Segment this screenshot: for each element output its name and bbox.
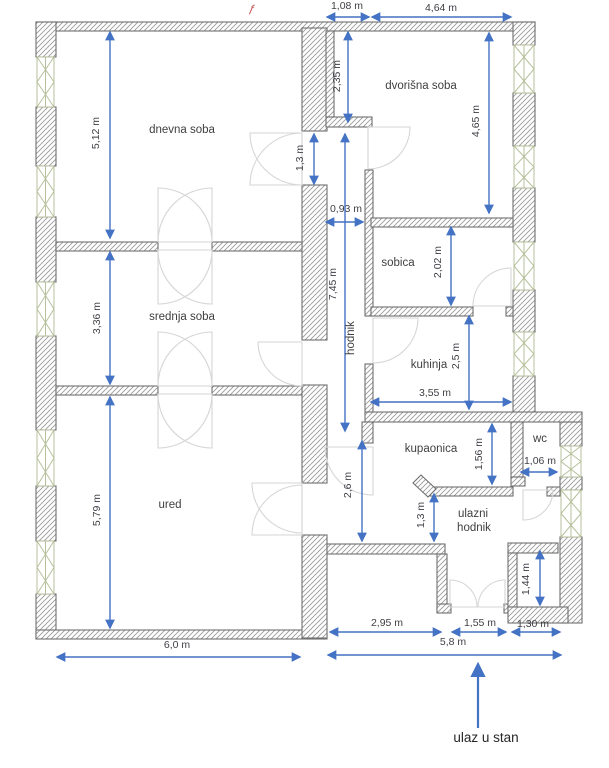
doors-layer xyxy=(158,127,553,607)
door-arc-icon xyxy=(158,250,212,304)
walls-layer xyxy=(36,22,582,639)
dimension-label: 5,8 m xyxy=(440,636,467,648)
dimension-label: 2,02 m xyxy=(432,246,444,278)
dimension-label: 1,3 m xyxy=(294,145,306,172)
dimension-label: 5,12 m xyxy=(90,117,102,149)
window-icon xyxy=(561,490,581,537)
wall-segment xyxy=(212,386,302,395)
window-icon xyxy=(37,166,54,217)
wall-segment xyxy=(36,22,56,57)
wall-segment xyxy=(56,386,158,395)
dimension-label: 7,45 m xyxy=(327,268,339,300)
wall-segment xyxy=(36,107,56,166)
wall-segment xyxy=(560,477,582,490)
dimension-label: 1,55 m xyxy=(464,617,496,629)
door-arc-icon xyxy=(158,188,212,242)
dimension-label: 1,56 m xyxy=(473,438,485,470)
dimension-label: 1,30 m xyxy=(517,618,549,630)
door-arc-icon xyxy=(158,394,212,448)
floorplan-drawing: 1,08 m4,64 m5,12 m3,36 m5,79 m2,35 m4,65… xyxy=(0,0,609,768)
wall-segment xyxy=(302,28,327,131)
wall-segment xyxy=(513,93,535,146)
door-arc-icon xyxy=(368,127,410,169)
window-icon xyxy=(37,57,54,107)
room-label: wc xyxy=(532,433,547,445)
dimension-label: 2,35 m xyxy=(331,60,343,92)
room-label: hodnik xyxy=(345,321,357,355)
wall-segment xyxy=(36,486,56,541)
wall-segment xyxy=(437,604,451,613)
window-icon xyxy=(514,45,534,93)
dimension-label: 0,93 m xyxy=(330,203,362,215)
door-arc-icon xyxy=(158,332,212,386)
wall-segment xyxy=(36,336,56,430)
wall-segment xyxy=(513,188,535,242)
wall-segment xyxy=(326,117,372,127)
room-label: ured xyxy=(158,499,181,511)
wall-segment xyxy=(365,364,373,412)
wall-segment xyxy=(362,422,373,443)
wall-segment xyxy=(511,422,523,477)
room-label: kuhinja xyxy=(411,359,448,371)
wall-segment xyxy=(212,242,302,251)
wall-segment xyxy=(560,422,582,446)
wall-segment xyxy=(302,535,327,638)
wall-segment xyxy=(437,554,447,612)
entrance-label: ulaz u stan xyxy=(453,730,518,745)
door-arc-icon xyxy=(258,342,302,386)
wall-segment xyxy=(365,412,582,422)
room-label: srednja soba xyxy=(149,311,215,323)
wall-segment xyxy=(302,185,327,340)
door-arc-icon xyxy=(373,318,418,363)
dimension-label: 4,65 m xyxy=(470,105,482,137)
wall-segment xyxy=(36,217,56,282)
wall-segment xyxy=(513,290,535,332)
dimension-label: 5,79 m xyxy=(91,494,103,526)
window-icon xyxy=(514,146,534,188)
wall-segment xyxy=(506,307,513,316)
wall-segment xyxy=(36,22,535,31)
wall-segment xyxy=(508,553,517,607)
wall-segment xyxy=(365,170,373,316)
window-icon xyxy=(37,541,54,594)
wall-segment xyxy=(513,22,535,45)
dimension-label: 3,36 m xyxy=(91,302,103,334)
dimension-label: 2,5 m xyxy=(450,343,462,370)
dimension-label: 6,0 m xyxy=(164,639,191,651)
room-label: dvorišna soba xyxy=(385,80,457,92)
door-arc-icon xyxy=(473,268,511,306)
dimension-label: 4,64 m xyxy=(425,2,457,14)
dimension-label: 1,08 m xyxy=(331,0,363,12)
room-label: hodnik xyxy=(457,522,491,534)
door-arc-icon xyxy=(158,188,212,242)
dimension-label: 3,55 m xyxy=(419,387,451,399)
door-arc-icon xyxy=(158,394,212,448)
dimension-label: 1,3 m xyxy=(415,502,427,529)
window-icon xyxy=(37,430,54,486)
room-label: sobica xyxy=(381,257,415,269)
wall-segment xyxy=(508,543,558,553)
door-arc-icon xyxy=(158,332,212,386)
wall-segment xyxy=(513,376,535,416)
wall-segment xyxy=(302,385,327,483)
wall-segment xyxy=(56,242,158,251)
dimension-label: 2,95 m xyxy=(371,617,403,629)
floorplan-page: 1,08 m4,64 m5,12 m3,36 m5,79 m2,35 m4,65… xyxy=(0,0,609,768)
door-arc-icon xyxy=(450,580,477,607)
red-pen-mark: ƒ xyxy=(247,3,255,16)
window-icon xyxy=(514,332,534,376)
window-icon xyxy=(37,282,54,336)
dimension-label: 2,6 m xyxy=(342,472,354,499)
wall-segment xyxy=(371,307,473,316)
wall-segment xyxy=(511,477,525,486)
wall-segment xyxy=(371,218,513,227)
room-label: ulazni xyxy=(458,508,488,520)
dimension-label: 1,06 m xyxy=(524,455,556,467)
room-label: dnevna soba xyxy=(149,124,215,136)
window-icon xyxy=(561,446,581,477)
room-label: kupaonica xyxy=(405,443,458,455)
wall-segment xyxy=(430,487,513,496)
door-arc-icon xyxy=(478,580,505,607)
dimension-label: 1,44 m xyxy=(520,563,532,595)
wall-segment xyxy=(327,544,445,554)
window-icon xyxy=(514,242,534,290)
door-arc-icon xyxy=(158,250,212,304)
wall-segment xyxy=(36,630,327,639)
